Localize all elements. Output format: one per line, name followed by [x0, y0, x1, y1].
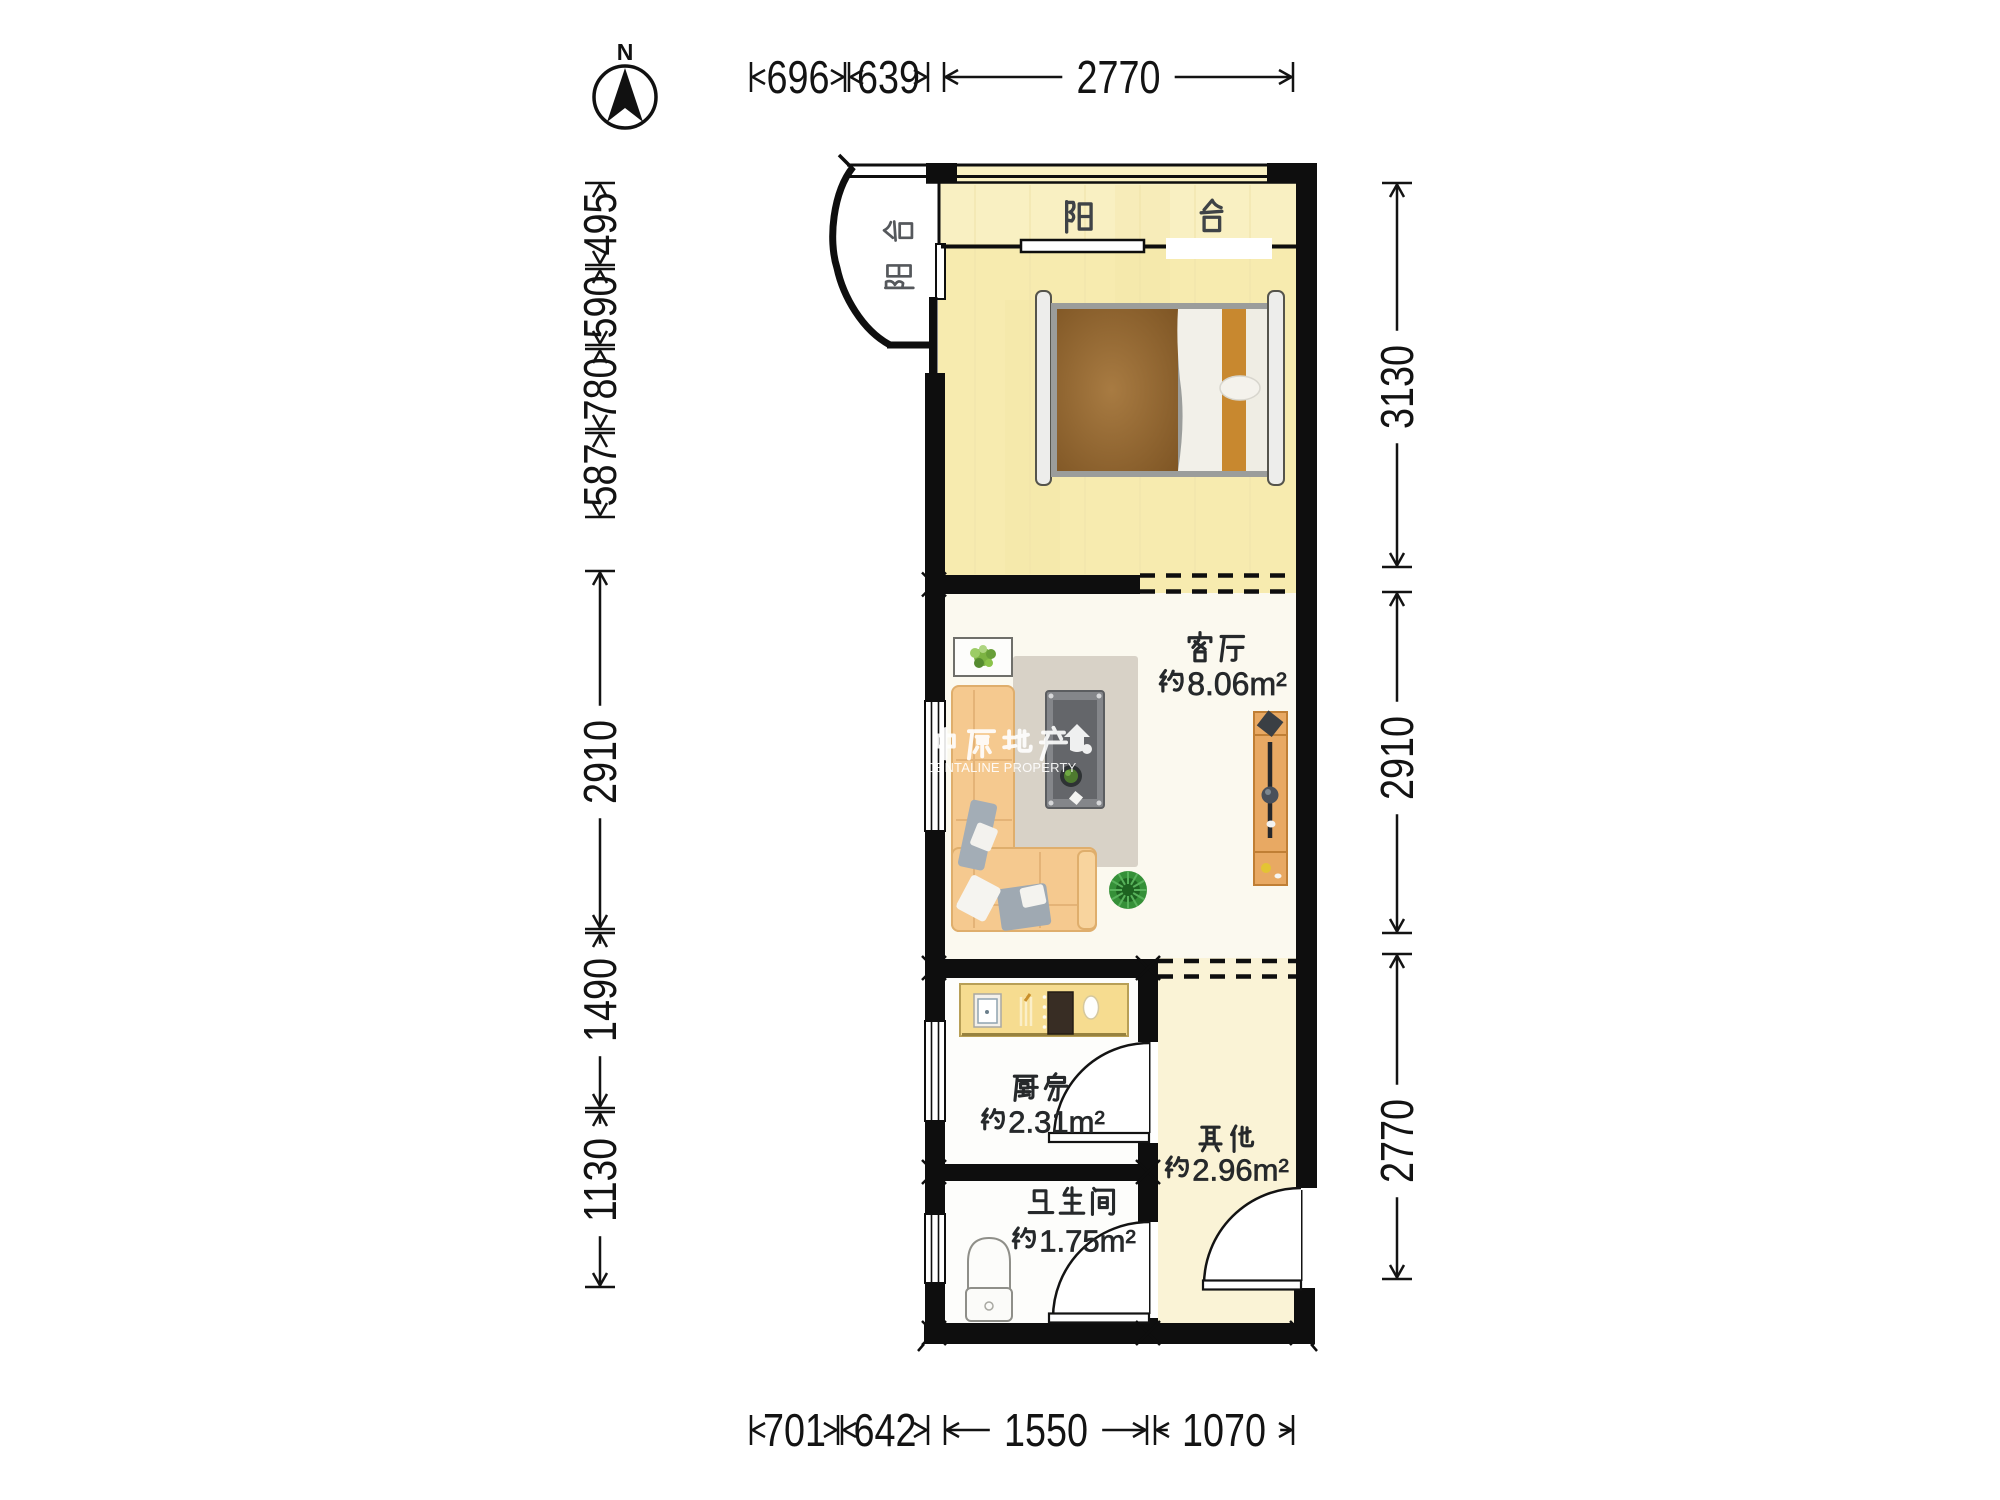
svg-text:701: 701 — [763, 1404, 826, 1456]
svg-text:1490: 1490 — [574, 958, 626, 1042]
svg-text:639: 639 — [857, 51, 920, 103]
svg-text:2770: 2770 — [1077, 51, 1161, 103]
svg-text:495: 495 — [574, 193, 626, 256]
svg-text:2.96m²: 2.96m² — [1192, 1153, 1288, 1188]
svg-text:780: 780 — [574, 358, 626, 421]
svg-text:3130: 3130 — [1371, 345, 1423, 429]
svg-text:590: 590 — [574, 276, 626, 339]
svg-text:2770: 2770 — [1371, 1099, 1423, 1183]
svg-text:1130: 1130 — [574, 1138, 626, 1222]
svg-text:2910: 2910 — [574, 720, 626, 804]
svg-text:N: N — [617, 39, 634, 65]
svg-text:1070: 1070 — [1182, 1404, 1266, 1456]
svg-text:587: 587 — [574, 444, 626, 507]
svg-text:642: 642 — [854, 1404, 917, 1456]
svg-text:2910: 2910 — [1371, 716, 1423, 800]
svg-text:8.06m²: 8.06m² — [1187, 666, 1287, 702]
svg-text:CENTALINE PROPERTY: CENTALINE PROPERTY — [926, 760, 1077, 775]
svg-text:1550: 1550 — [1004, 1404, 1088, 1456]
svg-text:2.31m²: 2.31m² — [1008, 1105, 1104, 1140]
svg-text:1.75m²: 1.75m² — [1039, 1224, 1135, 1259]
svg-text:696: 696 — [767, 51, 830, 103]
